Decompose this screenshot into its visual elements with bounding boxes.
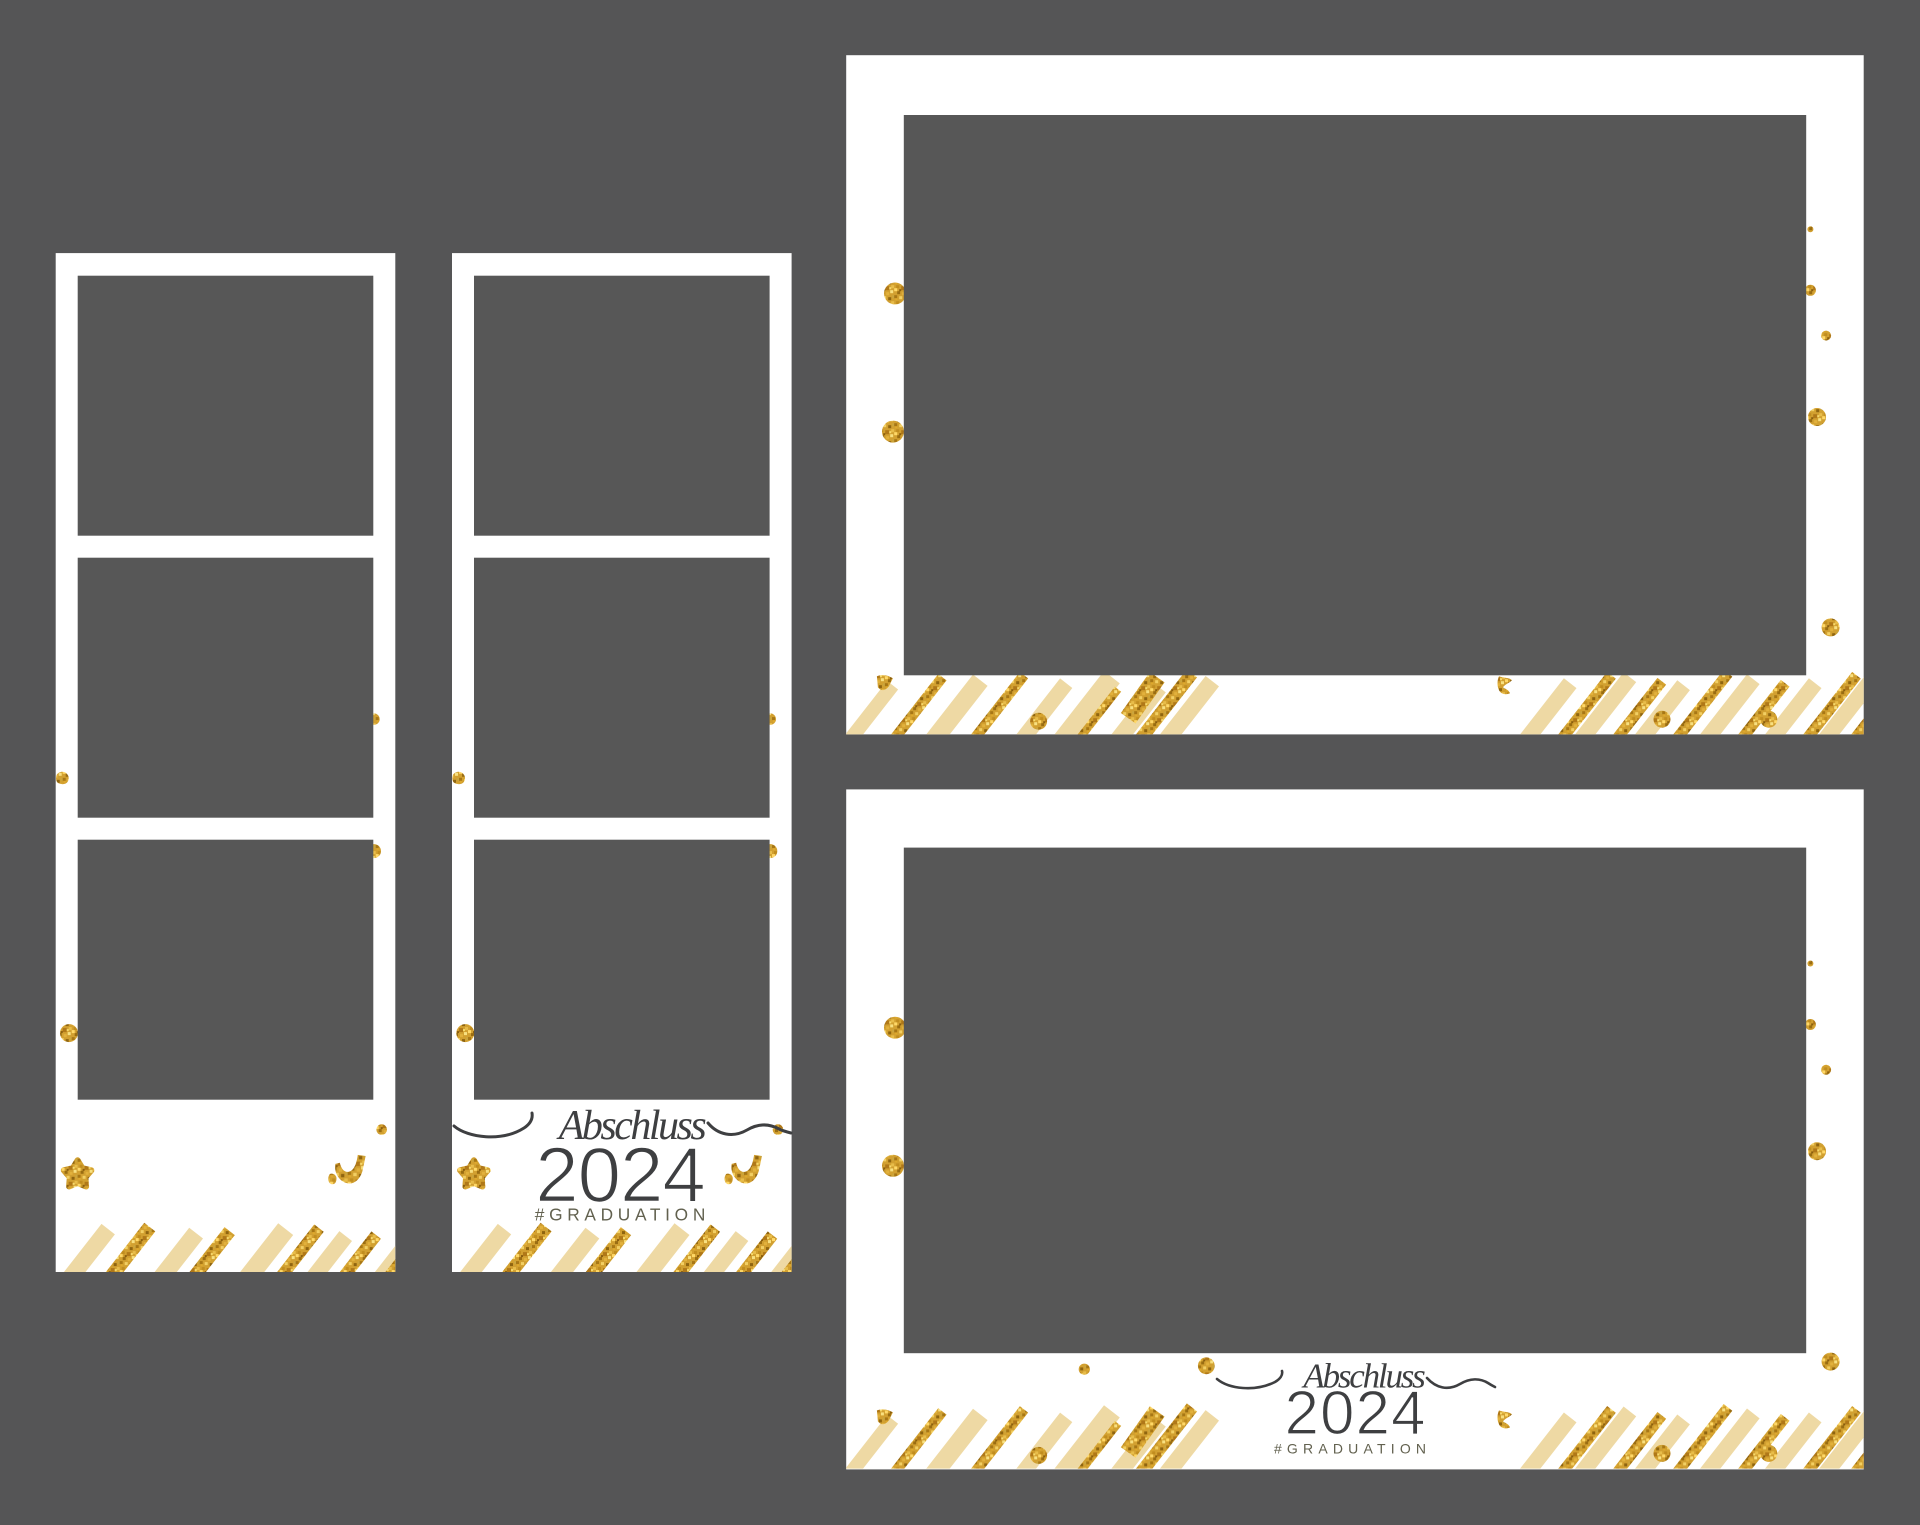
svg-text:2024: 2024 xyxy=(1285,1379,1427,1448)
svg-text:#GRADUATION: #GRADUATION xyxy=(1274,1440,1431,1456)
svg-text:#GRADUATION: #GRADUATION xyxy=(535,1204,710,1224)
